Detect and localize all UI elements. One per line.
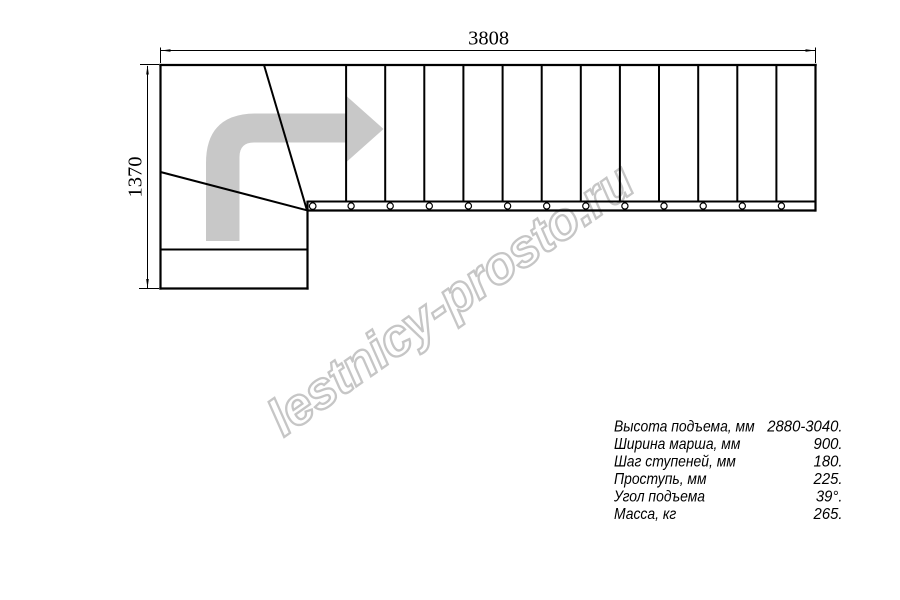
- svg-text:Ширина марша, мм: Ширина марша, мм: [614, 435, 740, 453]
- svg-text:Угол подъема: Угол подъема: [613, 488, 705, 506]
- svg-text:lestnicy-prosto.ru: lestnicy-prosto.ru: [257, 152, 644, 447]
- svg-text:3808: 3808: [468, 28, 509, 50]
- svg-text:Масса, кг: Масса, кг: [614, 505, 677, 523]
- svg-text:1370: 1370: [125, 157, 147, 198]
- svg-text:Шаг ступеней, мм: Шаг ступеней, мм: [614, 453, 736, 471]
- svg-text:Высота подъема, мм: Высота подъема, мм: [614, 418, 755, 436]
- svg-text:Проступь, мм: Проступь, мм: [614, 470, 707, 488]
- svg-text:180.: 180.: [814, 453, 843, 471]
- svg-text:265.: 265.: [813, 506, 843, 524]
- svg-text:225.: 225.: [813, 471, 843, 489]
- svg-text:900.: 900.: [814, 436, 843, 454]
- svg-text:2880-3040.: 2880-3040.: [766, 418, 842, 436]
- svg-text:39°.: 39°.: [816, 488, 843, 506]
